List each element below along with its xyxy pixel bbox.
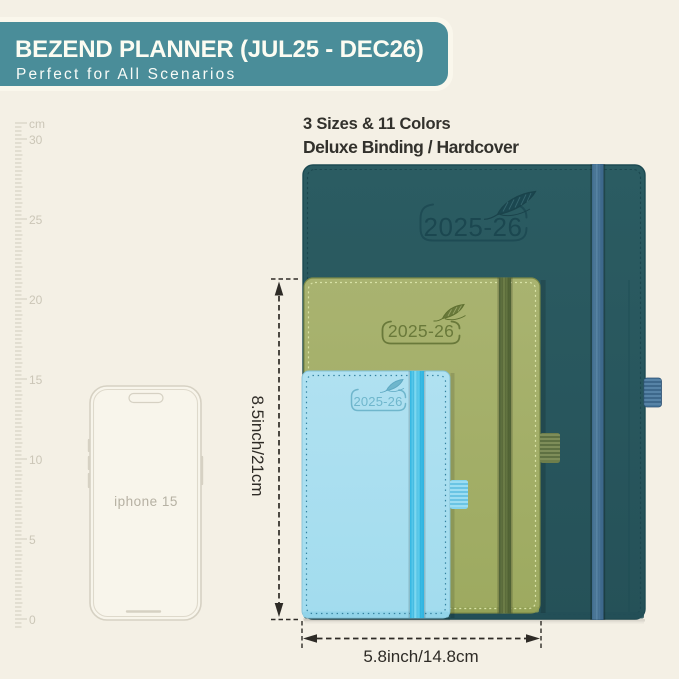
svg-text:BEZEND PLANNER (JUL25 - DEC26): BEZEND PLANNER (JUL25 - DEC26)	[15, 36, 424, 63]
svg-text:2025-26: 2025-26	[424, 212, 523, 242]
svg-text:10: 10	[29, 453, 43, 467]
svg-text:2025-26: 2025-26	[388, 321, 454, 341]
svg-text:20: 20	[29, 293, 43, 307]
svg-text:2025-26: 2025-26	[353, 394, 402, 409]
svg-text:5: 5	[29, 533, 36, 547]
svg-text:30: 30	[29, 133, 43, 147]
svg-text:iphone 15: iphone 15	[114, 494, 178, 509]
svg-text:8.5inch/21cm: 8.5inch/21cm	[248, 395, 267, 496]
svg-text:3 Sizes & 11 Colors: 3 Sizes & 11 Colors	[303, 115, 451, 133]
svg-text:Deluxe Binding / Hardcover: Deluxe Binding / Hardcover	[303, 137, 519, 157]
svg-text:0: 0	[29, 613, 36, 627]
svg-text:5.8inch/14.8cm: 5.8inch/14.8cm	[363, 647, 478, 666]
svg-text:25: 25	[29, 213, 43, 227]
svg-text:15: 15	[29, 373, 43, 387]
svg-text:Perfect for All Scenarios: Perfect for All Scenarios	[16, 66, 236, 83]
svg-text:cm: cm	[29, 117, 45, 131]
